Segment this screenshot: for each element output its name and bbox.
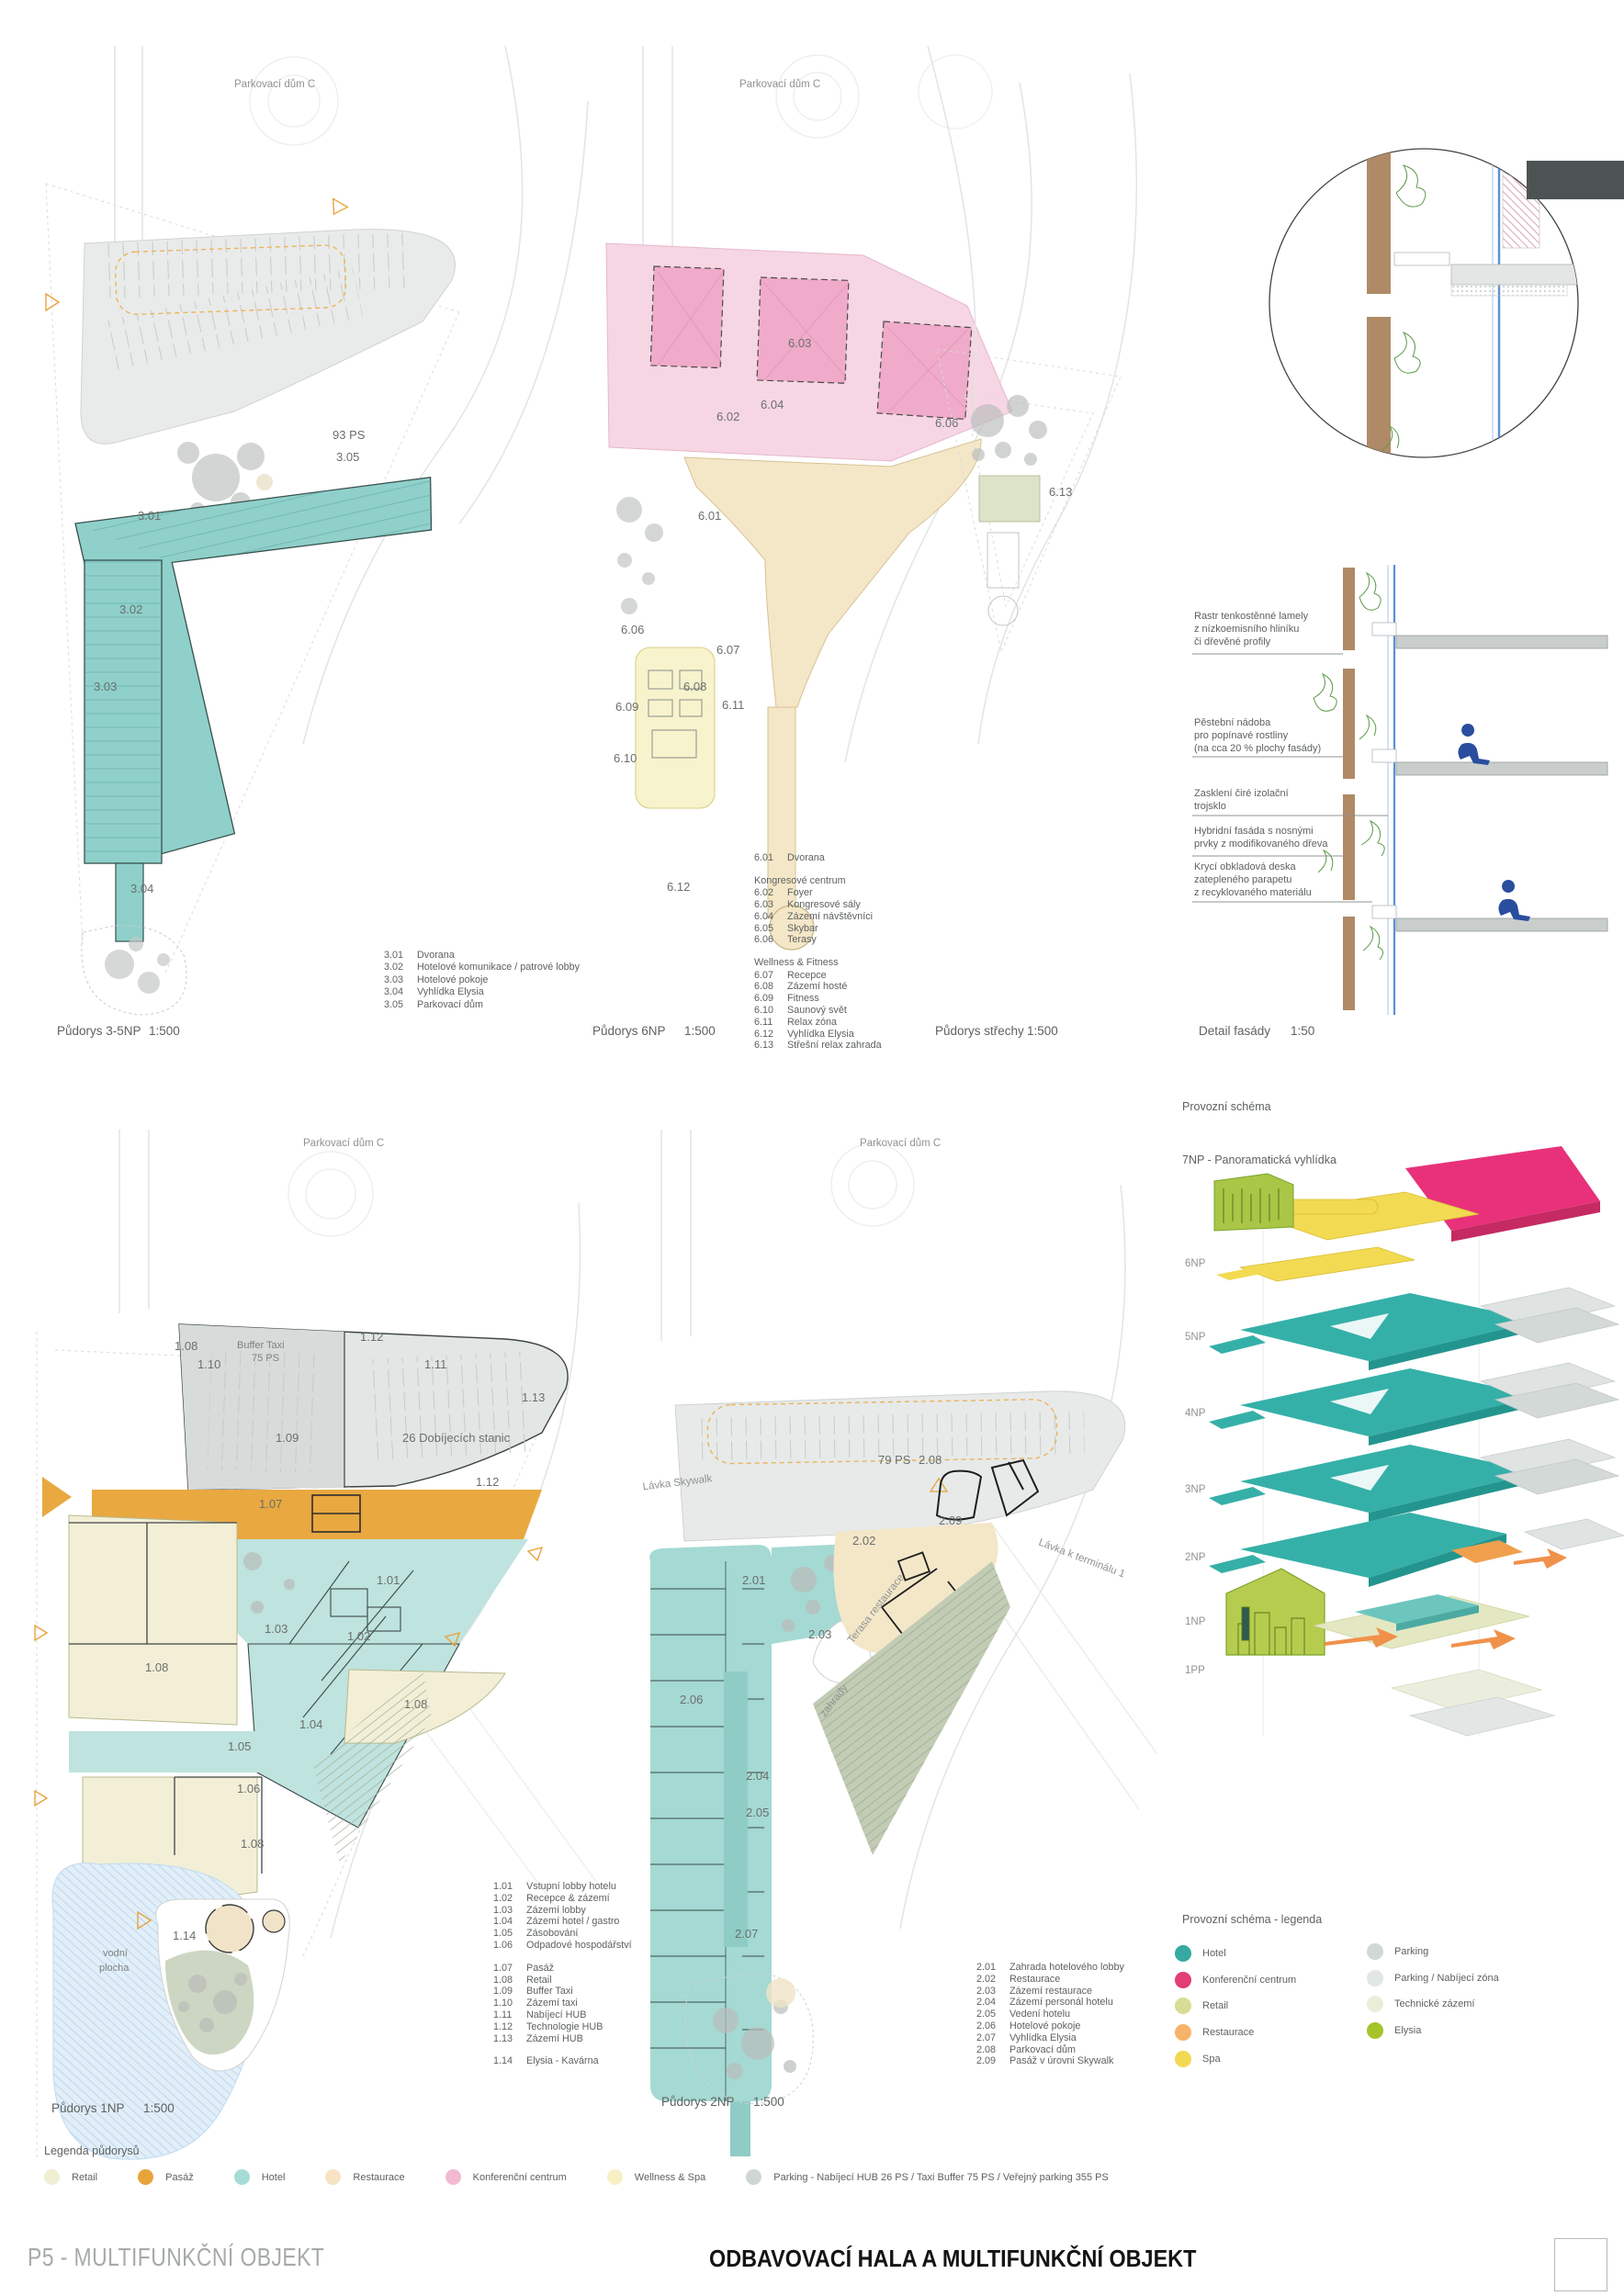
caption-plan2: Půdorys 2NP1:500 <box>661 2095 735 2109</box>
legend-item: Parking - Nabíjecí HUB 26 PS / Taxi Buff… <box>746 2169 1109 2185</box>
bottom-legend-items: RetailPasážHotelRestauraceKonferenční ce… <box>44 2169 1109 2185</box>
room-112b: 1.12 <box>476 1475 499 1489</box>
caption-plan35: Půdorys 3-5NP1:500 <box>57 1024 141 1038</box>
room-106: 1.06 <box>237 1782 260 1795</box>
legend-item: Parking <box>1367 1939 1499 1965</box>
room-107: 1.07 <box>259 1497 282 1511</box>
parking-ps-label: 93 PS <box>333 428 366 442</box>
water-label-1: vodní <box>103 1948 128 1959</box>
color-dot-icon <box>1367 1970 1383 1986</box>
legend-item: Retail <box>1175 1993 1296 2020</box>
color-dot-icon <box>1367 1996 1383 2012</box>
color-dot-icon <box>234 2169 250 2185</box>
title-block-box <box>1554 2238 1607 2291</box>
room-304: 3.04 <box>130 882 153 895</box>
facade-annotation: Krycí obkladová deska zatepleného parape… <box>1194 861 1355 899</box>
room-612: 6.12 <box>667 880 690 894</box>
legend-item: Restaurace <box>1175 2020 1296 2046</box>
level-1pp-shapes <box>1392 1670 1554 1736</box>
room-205: 2.05 <box>746 1806 769 1819</box>
flow-arrow-icon <box>1514 1548 1567 1569</box>
plan6-legend-group2-header: Wellness & Fitness <box>754 957 882 969</box>
legend-item: Technické zázemí <box>1367 1991 1499 2018</box>
bottom-legend-title: Legenda půdorysů <box>44 2144 140 2157</box>
room-302: 3.02 <box>119 602 142 616</box>
caption-plan6: Půdorys 6NP1:500 <box>592 1024 666 1038</box>
floor-label-2np: 2NP <box>1185 1552 1205 1563</box>
room-104: 1.04 <box>299 1717 322 1731</box>
color-dot-icon <box>445 2169 461 2185</box>
room-105: 1.05 <box>228 1739 251 1753</box>
color-dot-icon <box>1175 1998 1191 2014</box>
plan6-legend: 6.01Dvorana Kongresové centrum 6.02Foyer… <box>754 852 882 1052</box>
site-label: Parkovací dům C <box>860 1138 941 1149</box>
facade-annotation: Hybridní fasáda s nosnými prvky z modifi… <box>1194 825 1355 850</box>
sheet-main-title: ODBAVOVACÍ HALA A MULTIFUNKČNÍ OBJEKT <box>709 2245 1196 2273</box>
room-206: 2.06 <box>680 1693 703 1706</box>
dvorana-garden <box>616 497 663 614</box>
room-112: 1.12 <box>360 1330 383 1344</box>
legend-item: Hotel <box>234 2169 286 2185</box>
room-608: 6.08 <box>683 680 706 693</box>
room-110: 1.10 <box>197 1357 220 1371</box>
ps-label: 79 PS <box>878 1453 911 1467</box>
room-613: 6.13 <box>1049 485 1072 499</box>
room-202: 2.02 <box>852 1534 875 1548</box>
site-label: Parkovací dům C <box>303 1138 384 1149</box>
legend-item: Hotel <box>1175 1941 1296 1967</box>
room-101: 1.01 <box>377 1573 400 1587</box>
room-601: 6.01 <box>698 509 721 523</box>
level-7np-shapes <box>1214 1146 1600 1242</box>
plan35-legend: 3.01Dvorana3.02Hotelové komunikace / pat… <box>384 950 580 1011</box>
facade-annotation: Rastr tenkostěnné lamely z nízkoemisního… <box>1194 610 1355 648</box>
legend-item: Wellness & Spa <box>607 2169 705 2185</box>
room-109: 1.09 <box>276 1431 299 1445</box>
caption-facade: Detail fasády1:50 <box>1199 1024 1270 1038</box>
floor-label-4np: 4NP <box>1185 1408 1205 1419</box>
color-dot-icon <box>1175 1972 1191 1988</box>
person-icon <box>1458 724 1490 765</box>
context-streets <box>919 46 1136 744</box>
room-108b: 1.08 <box>145 1660 168 1674</box>
room-602: 6.02 <box>716 410 739 423</box>
water-label-2: plocha <box>99 1963 130 1974</box>
room-103: 1.03 <box>265 1622 288 1636</box>
room-108d: 1.08 <box>241 1837 264 1851</box>
hotel-rooms-shape <box>649 1545 772 2156</box>
parking-code-label: 3.05 <box>336 450 359 464</box>
facade-annotation: Zasklení čiré izolační trojsklo <box>1194 787 1355 813</box>
room-301: 3.01 <box>138 509 161 523</box>
legend-item: Konferenční centrum <box>445 2169 567 2185</box>
color-dot-icon <box>44 2169 60 2185</box>
scheme-legend-right: ParkingParking / Nabíjecí zónaTechnické … <box>1367 1939 1499 2043</box>
level-4np-shapes <box>1209 1363 1618 1446</box>
color-dot-icon <box>1367 1943 1383 1960</box>
room-102: 1.02 <box>347 1629 370 1643</box>
room-113: 1.13 <box>522 1390 545 1404</box>
floor-label-1np: 1NP <box>1185 1616 1205 1627</box>
color-dot-icon <box>746 2169 761 2185</box>
site-label: Parkovací dům C <box>739 79 820 90</box>
legend-item: Restaurace <box>325 2169 404 2185</box>
room-607: 6.07 <box>716 643 739 657</box>
color-dot-icon <box>1175 1945 1191 1962</box>
stations-label: 26 Dobíjecích stanic <box>402 1431 511 1445</box>
plan-3-5np-drawing: Parkovací dům C 93 PS 3.05 3.01 3.02 3.0… <box>28 46 597 1029</box>
legend-item: Parking / Nabíjecí zóna <box>1367 1965 1499 1992</box>
legend-item: Konferenční centrum <box>1175 1967 1296 1994</box>
legend-item: Retail <box>44 2169 97 2185</box>
level-6np-shapes <box>1216 1247 1415 1281</box>
room-204: 2.04 <box>746 1769 769 1783</box>
room-207: 2.07 <box>735 1927 758 1941</box>
scheme-axonometric <box>1176 1093 1624 1855</box>
floor-label-6np: 6NP <box>1185 1258 1205 1269</box>
level-3np-shapes <box>1209 1439 1618 1522</box>
color-dot-icon <box>607 2169 623 2185</box>
room-609: 6.09 <box>615 700 638 714</box>
facade-section <box>1314 565 1607 1015</box>
room-303: 3.03 <box>94 680 117 693</box>
legend-item: Elysia <box>1367 2018 1499 2044</box>
room-603: 6.03 <box>788 336 811 350</box>
buffer-label-2: 75 PS <box>252 1353 279 1364</box>
parking-structure-shape <box>46 198 455 444</box>
room-611: 6.11 <box>722 698 744 712</box>
scheme-legend-title: Provozní schéma - legenda <box>1182 1913 1322 1926</box>
person-icon <box>1498 880 1530 921</box>
room-111: 1.11 <box>424 1357 446 1371</box>
plan2-legend: 2.01Zahrada hotelového lobby2.02Restaura… <box>976 1962 1124 2067</box>
facade-annotation: Pěstební nádoba pro popínavé rostliny (n… <box>1194 716 1355 755</box>
presentation-sheet: { "sheet": { "footer_left": "P5 - MULTIF… <box>0 0 1624 2296</box>
site-label: Parkovací dům C <box>234 79 315 90</box>
color-dot-icon <box>325 2169 341 2185</box>
level-5np-shapes <box>1209 1288 1618 1370</box>
room-114: 1.14 <box>173 1929 196 1942</box>
color-dot-icon <box>1175 2024 1191 2041</box>
detail-circle <box>1269 147 1624 464</box>
room-201: 2.01 <box>742 1573 765 1587</box>
room-604: 6.04 <box>761 398 784 411</box>
roof-relax-garden-shape <box>979 476 1040 625</box>
color-dot-icon <box>138 2169 153 2185</box>
south-garden <box>82 926 186 1015</box>
floor-label-3np: 3NP <box>1185 1484 1205 1495</box>
roof-plan-drawing: 6.13 <box>900 46 1176 1029</box>
color-dot-icon <box>1175 2051 1191 2067</box>
color-dot-icon <box>1367 2022 1383 2039</box>
floor-slabs <box>1372 623 1607 931</box>
floor-label-1pp: 1PP <box>1185 1665 1205 1676</box>
legend-item: Spa <box>1175 2045 1296 2072</box>
plan6-legend-group1-header: Kongresové centrum <box>754 875 882 887</box>
room-108: 1.08 <box>175 1339 197 1353</box>
room-208: 2.08 <box>919 1453 942 1467</box>
caption-roof: Půdorys střechy1:500 <box>935 1024 1024 1038</box>
buffer-label-1: Buffer Taxi <box>237 1340 285 1351</box>
sheet-id-title: P5 - MULTIFUNKČNÍ OBJEKT <box>28 2243 324 2272</box>
wellness-block-shape <box>636 647 715 808</box>
plan1-legend: 1.01Vstupní lobby hotelu1.02Recepce & zá… <box>493 1881 632 2067</box>
scheme-legend-left: HotelKonferenční centrumRetailRestaurace… <box>1175 1941 1296 2072</box>
room-610: 6.10 <box>614 751 637 765</box>
room-203: 2.03 <box>808 1627 831 1641</box>
legend-item: Pasáž <box>138 2169 194 2185</box>
floor-label-5np: 5NP <box>1185 1332 1205 1343</box>
dark-slab <box>1527 161 1624 199</box>
caption-plan1: Půdorys 1NP1:500 <box>51 2101 125 2115</box>
